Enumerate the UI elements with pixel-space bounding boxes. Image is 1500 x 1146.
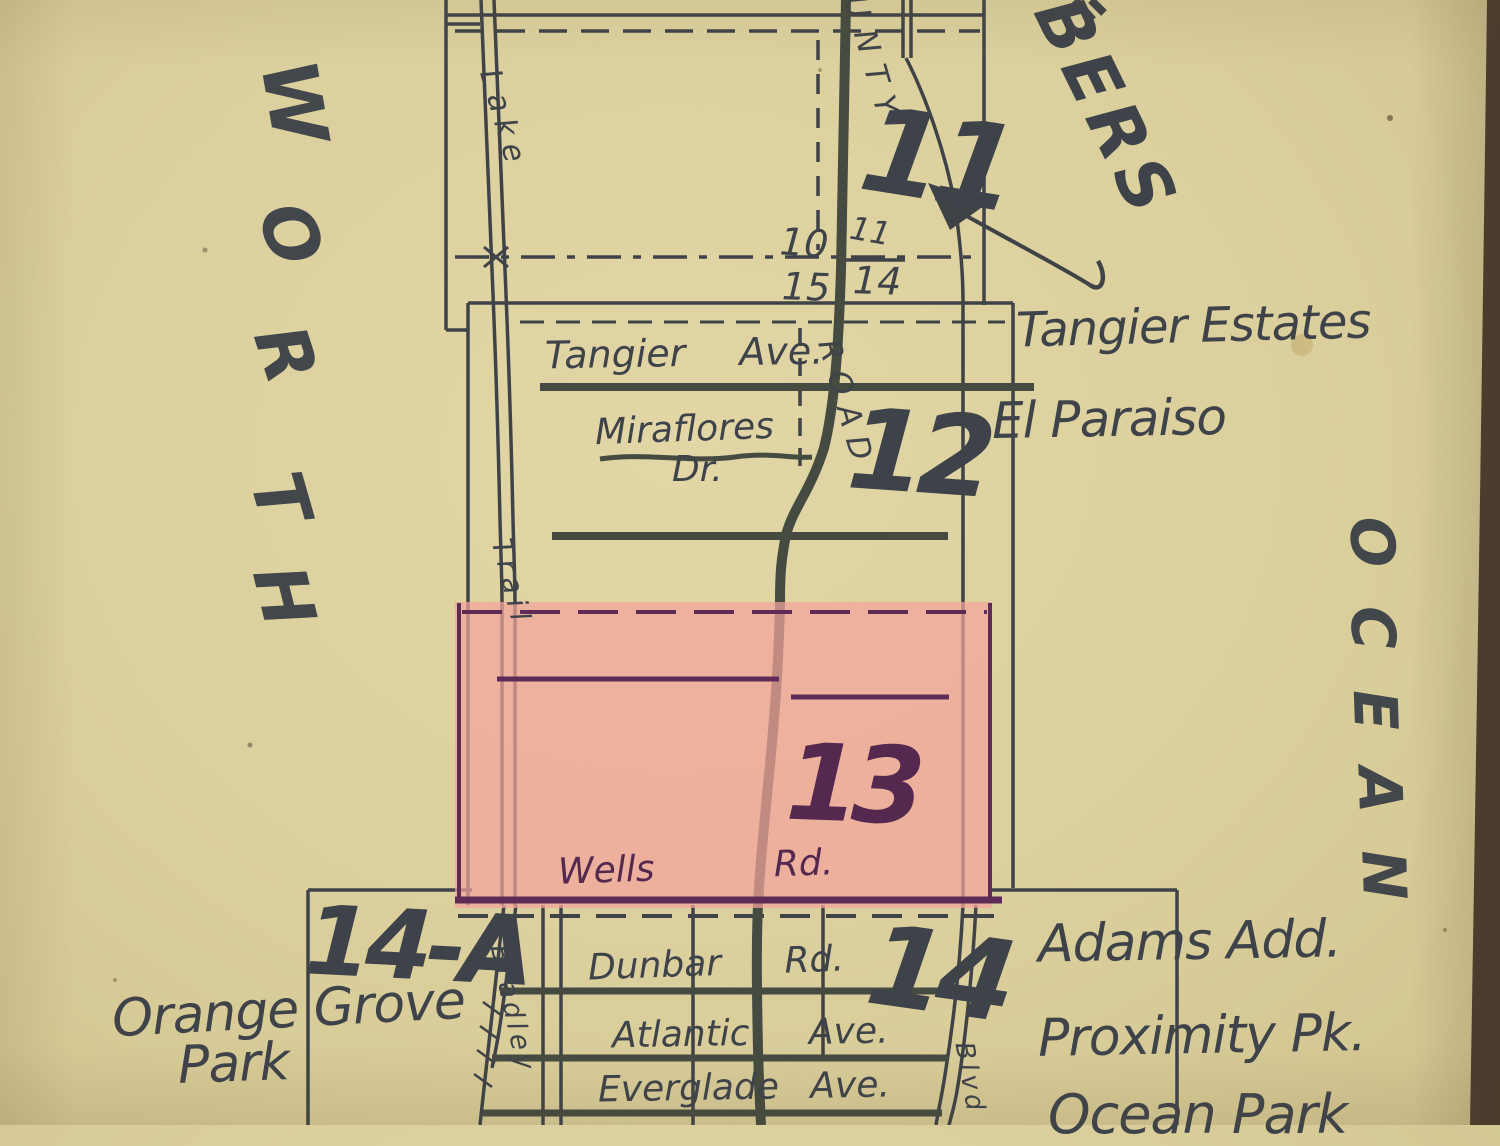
corner-number-10: 10 <box>779 222 830 263</box>
shore-letter: O <box>1340 514 1403 569</box>
place-label-adams-add: Adams Add. <box>1038 913 1342 970</box>
street-label-tangier-ave: Tangier Ave. <box>545 332 824 375</box>
place-label-tangier-estates: Tangier Estates <box>1015 297 1371 354</box>
photo-edge-strip <box>1470 0 1500 1125</box>
shore-letter: W <box>249 54 338 150</box>
corner-number-11: 11 <box>848 212 894 251</box>
shore-letter: C <box>1341 604 1404 652</box>
place-label-proximity-pk: Proximity Pk. <box>1038 1007 1366 1065</box>
shore-letter: E <box>1344 688 1405 731</box>
section-number-11: 11 <box>854 89 1019 229</box>
place-label-ocean-park: Ocean Park <box>1048 1088 1347 1142</box>
street-label-wells-rd: Wells Rd. <box>557 845 833 891</box>
shore-letter: N <box>1352 849 1414 901</box>
section-number-13: 13 <box>784 730 919 841</box>
corner-number-15: 15 <box>781 267 831 307</box>
place-label-el-paraiso: El Paraiso <box>992 392 1227 446</box>
street-label-miraflores: Miraflores <box>594 409 774 451</box>
street-label-everglade-ave: Everglade Ave. <box>598 1067 890 1108</box>
street-label-miraflores-dr: Dr. <box>672 452 723 488</box>
street-label-atlantic-ave: Atlantic Ave. <box>612 1014 889 1055</box>
section-number-12: 12 <box>844 393 991 514</box>
street-label-dunbar-rd: Dunbar Rd. <box>587 942 844 987</box>
corner-number-14: 14 <box>852 261 902 301</box>
place-label-orange-grove-park: Park <box>177 1036 289 1092</box>
shore-letter: A <box>1348 766 1410 815</box>
plat-map-canvas[interactable]: W O R T H O C E A N BERS UNTY ROAD Lake … <box>0 0 1500 1125</box>
